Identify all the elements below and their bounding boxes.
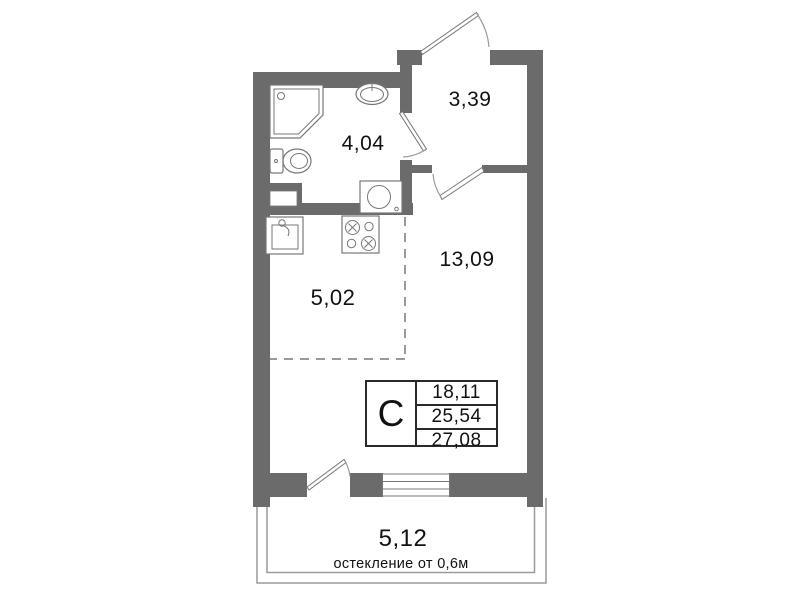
bathroom-door	[400, 112, 427, 158]
floor-plan-page: 3,39 4,04 13,09 5,02 5,12 остекление от …	[0, 0, 799, 600]
kitchen-area-label: 5,02	[311, 285, 356, 311]
entrance-door	[421, 13, 490, 55]
window	[382, 473, 450, 497]
apartment-type-label: С	[367, 382, 417, 445]
stove	[342, 216, 379, 253]
living-area-label: 13,09	[439, 248, 494, 272]
area-value-3: 27,08	[417, 430, 496, 452]
kitchen-sink	[266, 217, 303, 254]
vent-duct	[270, 191, 297, 206]
balcony-glazing-note: остекление от 0,6м	[333, 556, 468, 572]
shower-cabin	[270, 85, 323, 138]
toilet	[270, 149, 311, 173]
washing-machine	[360, 181, 402, 213]
living-room-door	[433, 168, 484, 200]
bathroom-area-label: 4,04	[342, 132, 385, 156]
area-value-2: 25,54	[417, 406, 496, 430]
hall-area-label: 3,39	[449, 88, 492, 112]
apartment-areas: 18,11 25,54 27,08	[417, 382, 496, 445]
floor-plan-canvas	[0, 0, 799, 600]
balcony-door	[307, 460, 350, 491]
bathroom-sink	[356, 84, 388, 105]
apartment-info-table: С 18,11 25,54 27,08	[365, 380, 498, 447]
area-value-1: 18,11	[417, 382, 496, 406]
balcony-area-label: 5,12	[379, 525, 428, 553]
